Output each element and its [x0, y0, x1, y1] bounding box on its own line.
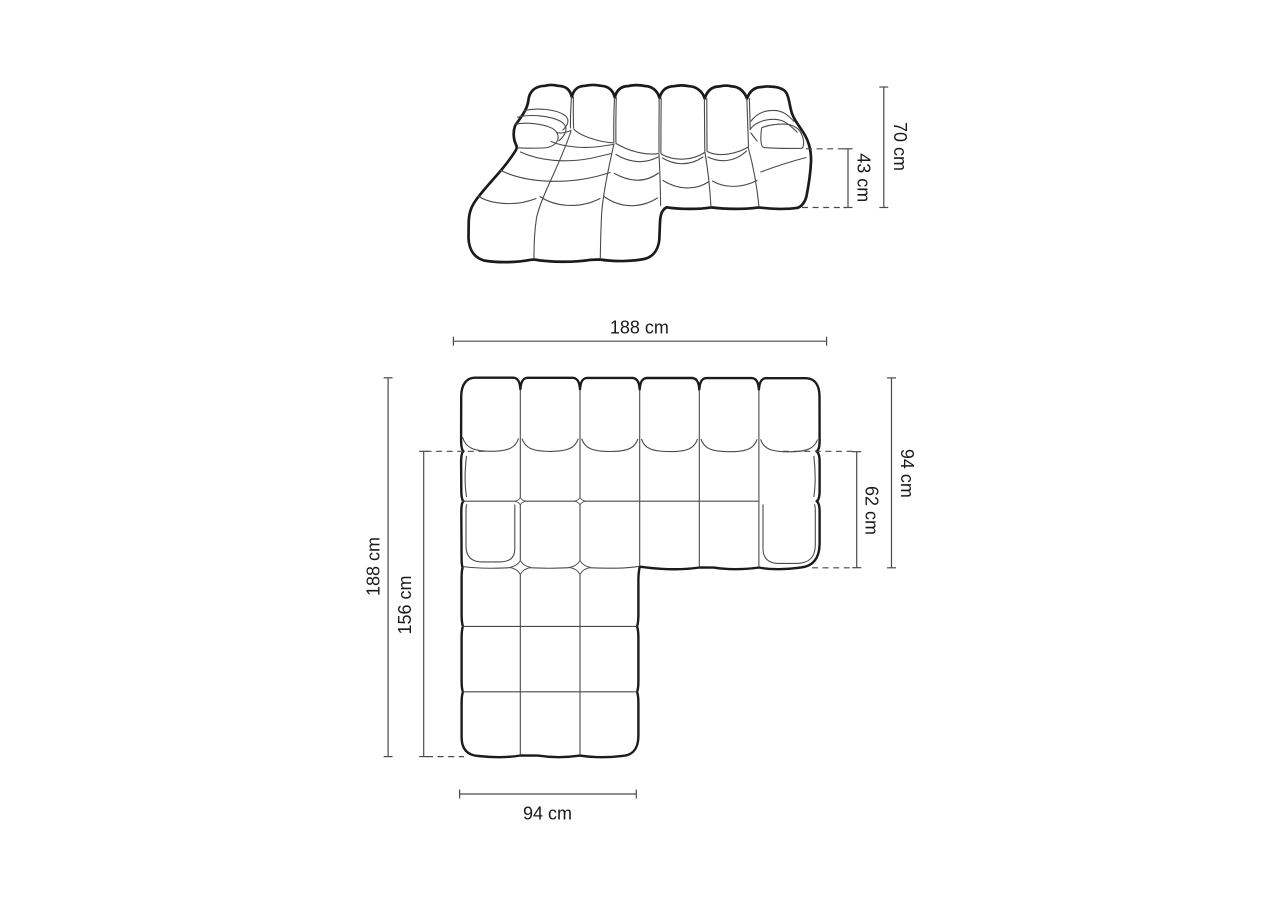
- svg-text:43 cm: 43 cm: [853, 153, 873, 202]
- svg-text:188 cm: 188 cm: [364, 537, 384, 596]
- svg-text:94 cm: 94 cm: [897, 449, 917, 498]
- svg-text:188 cm: 188 cm: [610, 318, 669, 338]
- svg-text:94 cm: 94 cm: [523, 804, 572, 824]
- svg-text:70 cm: 70 cm: [890, 122, 910, 171]
- svg-text:156 cm: 156 cm: [395, 575, 415, 634]
- svg-text:62 cm: 62 cm: [862, 486, 882, 535]
